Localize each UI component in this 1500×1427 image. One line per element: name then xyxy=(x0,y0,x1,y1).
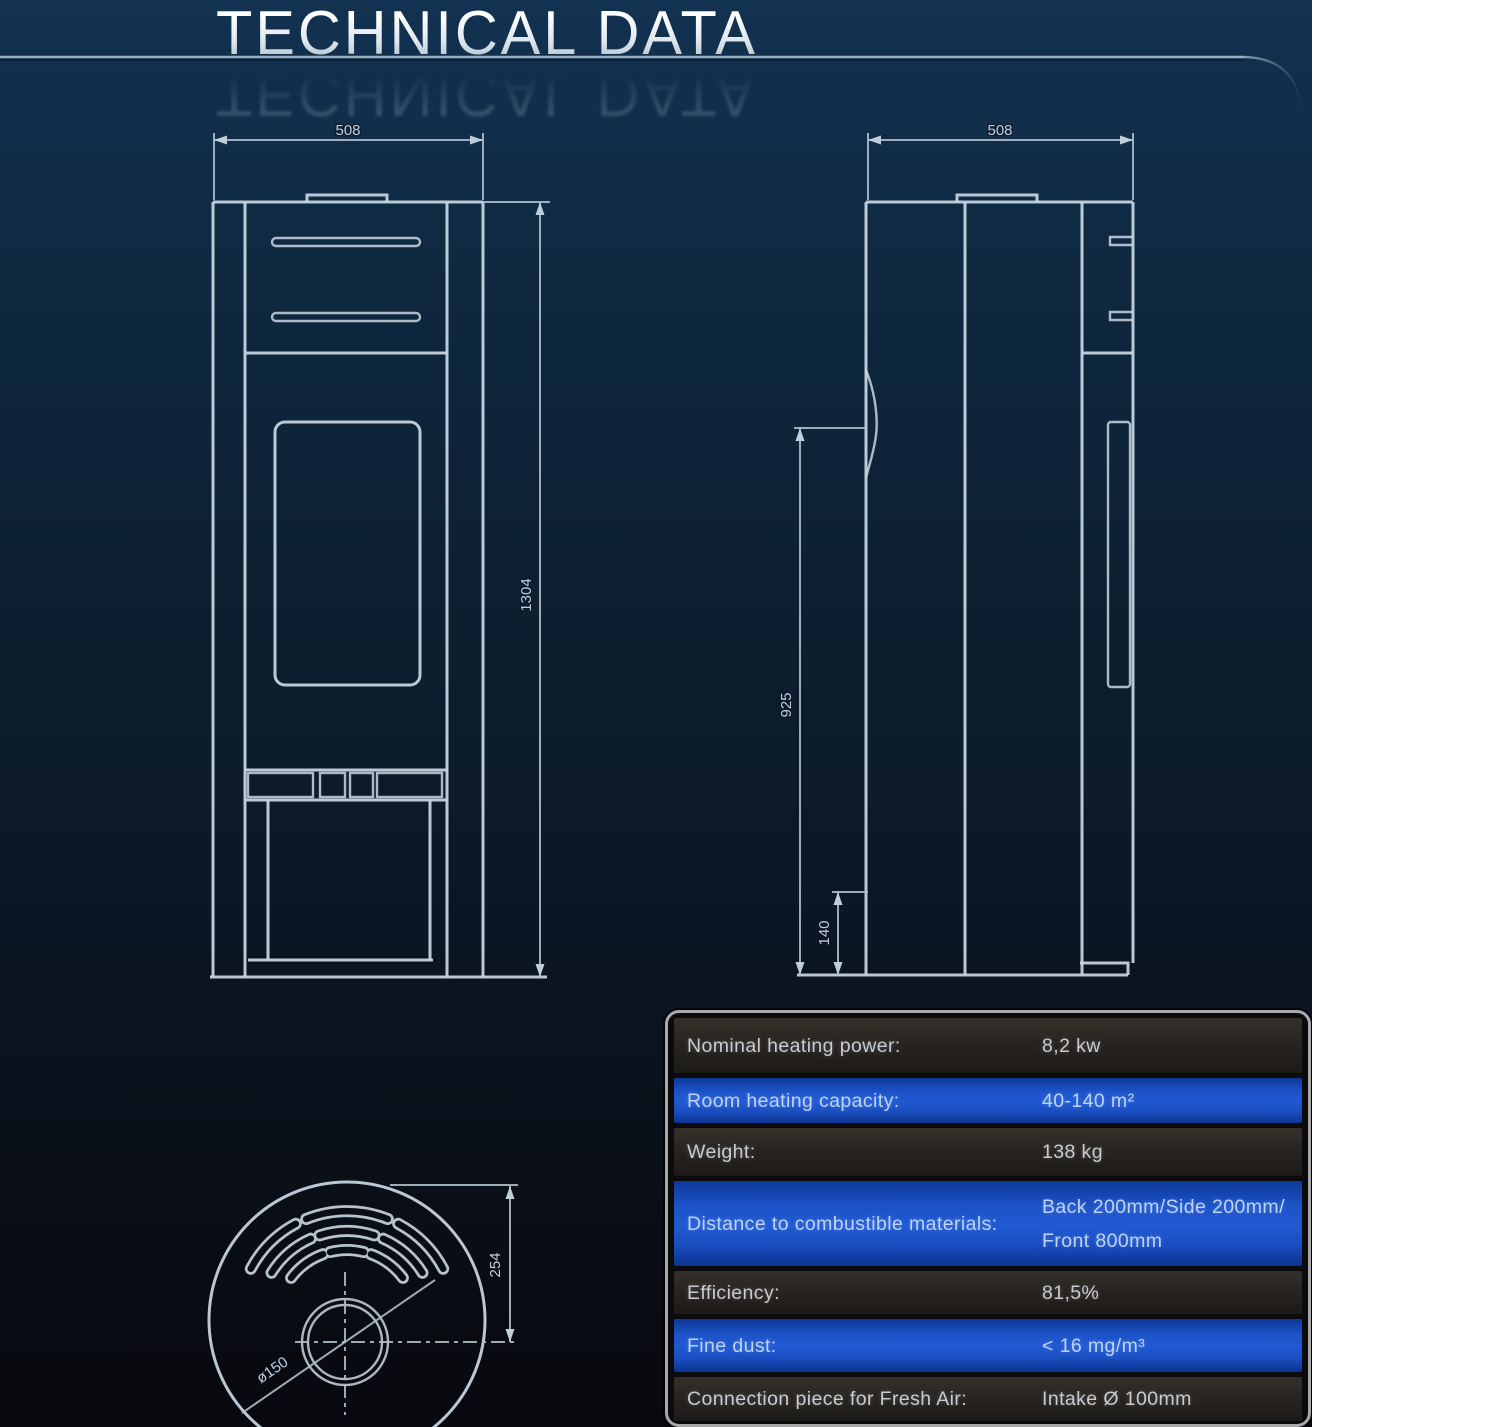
spec-value: Back 200mm/Side 200mm/ Front 800mm xyxy=(1042,1190,1285,1258)
table-row: Nominal heating power:8,2 kw xyxy=(674,1018,1302,1073)
spec-label: Connection piece for Fresh Air: xyxy=(687,1382,967,1416)
dimension-label: 925 xyxy=(778,692,795,717)
side-lower-dimension: 140 xyxy=(816,892,868,975)
page-title: TECHNICAL DATA xyxy=(216,3,758,65)
spec-label: Weight: xyxy=(687,1135,756,1169)
dimension-label: 140 xyxy=(816,920,833,945)
spec-value: < 16 mg/m³ xyxy=(1042,1329,1145,1363)
spec-label: Efficiency: xyxy=(687,1276,780,1310)
spec-label: Distance to combustible materials: xyxy=(687,1207,998,1241)
side-view-drawing: 508 925 140 xyxy=(770,120,1150,990)
side-view-outline xyxy=(797,195,1133,975)
dimension-label: 508 xyxy=(335,122,360,139)
front-view-drawing: 508 1304 xyxy=(200,120,560,990)
table-row: Fine dust:< 16 mg/m³ xyxy=(674,1319,1302,1372)
page-title-reflection: TECHNICAL DATA xyxy=(216,62,758,124)
spec-value: 8,2 kw xyxy=(1042,1029,1101,1063)
table-row: Connection piece for Fresh Air:Intake Ø … xyxy=(674,1377,1302,1421)
spec-label: Nominal heating power: xyxy=(687,1029,901,1063)
spec-value: 40-140 m² xyxy=(1042,1084,1134,1118)
front-view-outline xyxy=(210,195,547,977)
side-depth-dimension: 508 xyxy=(868,122,1133,200)
table-row: Room heating capacity:40-140 m² xyxy=(674,1078,1302,1123)
page-margin xyxy=(1312,0,1500,1427)
front-height-dimension: 1304 xyxy=(483,202,550,977)
spec-value: 138 kg xyxy=(1042,1135,1103,1169)
datasheet-page: TECHNICAL DATA TECHNICAL DATA 508 xyxy=(0,0,1312,1427)
table-row: Distance to combustible materials:Back 2… xyxy=(674,1181,1302,1266)
spec-value: Intake Ø 100mm xyxy=(1042,1382,1192,1416)
spec-label: Room heating capacity: xyxy=(687,1084,900,1118)
dimension-label: 508 xyxy=(987,122,1012,139)
spec-value: 81,5% xyxy=(1042,1276,1099,1310)
spec-label: Fine dust: xyxy=(687,1329,777,1363)
top-view-outline: ø150 xyxy=(209,1182,515,1427)
dimension-label: 1304 xyxy=(518,578,535,611)
table-row: Weight:138 kg xyxy=(674,1128,1302,1176)
front-width-dimension: 508 xyxy=(214,122,483,200)
dimension-label: 254 xyxy=(487,1252,504,1277)
spec-table: Nominal heating power:8,2 kwRoom heating… xyxy=(665,1010,1311,1427)
table-row: Efficiency:81,5% xyxy=(674,1271,1302,1314)
top-view-drawing: ø150 254 xyxy=(190,1170,550,1427)
